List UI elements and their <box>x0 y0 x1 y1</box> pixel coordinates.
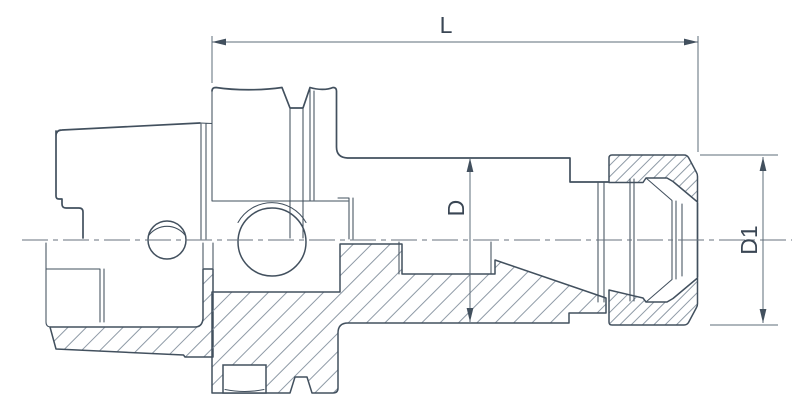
shank-bore-lines <box>46 243 213 327</box>
hsk-shank-outline <box>56 123 200 238</box>
body-bore-lines <box>399 242 491 274</box>
dimension-D1-arrow-top <box>760 157 767 171</box>
dimension-L-label: L <box>440 12 453 38</box>
drive-slot <box>223 365 266 393</box>
dimension-L-arrow-left <box>212 39 226 46</box>
section-hatching <box>50 155 698 393</box>
technical-drawing: L D D1 <box>0 0 812 417</box>
flange-and-body-outline <box>212 88 608 183</box>
holes <box>148 203 306 276</box>
dimension-L-arrow-right <box>684 39 698 46</box>
dimension-D-label: D <box>443 200 469 217</box>
dimension-D-arrow-top <box>467 158 474 172</box>
dimension-D1-label: D1 <box>736 225 762 254</box>
collet-nut-section-top <box>609 155 698 202</box>
drawing-canvas: L D D1 <box>0 0 812 417</box>
coolant-bore-circle <box>238 208 306 276</box>
collet-nut-section-bottom <box>609 278 698 325</box>
dimension-L: L <box>212 12 698 152</box>
dimension-D1-arrow-bottom <box>760 309 767 323</box>
shank-section-hatch <box>50 269 213 357</box>
